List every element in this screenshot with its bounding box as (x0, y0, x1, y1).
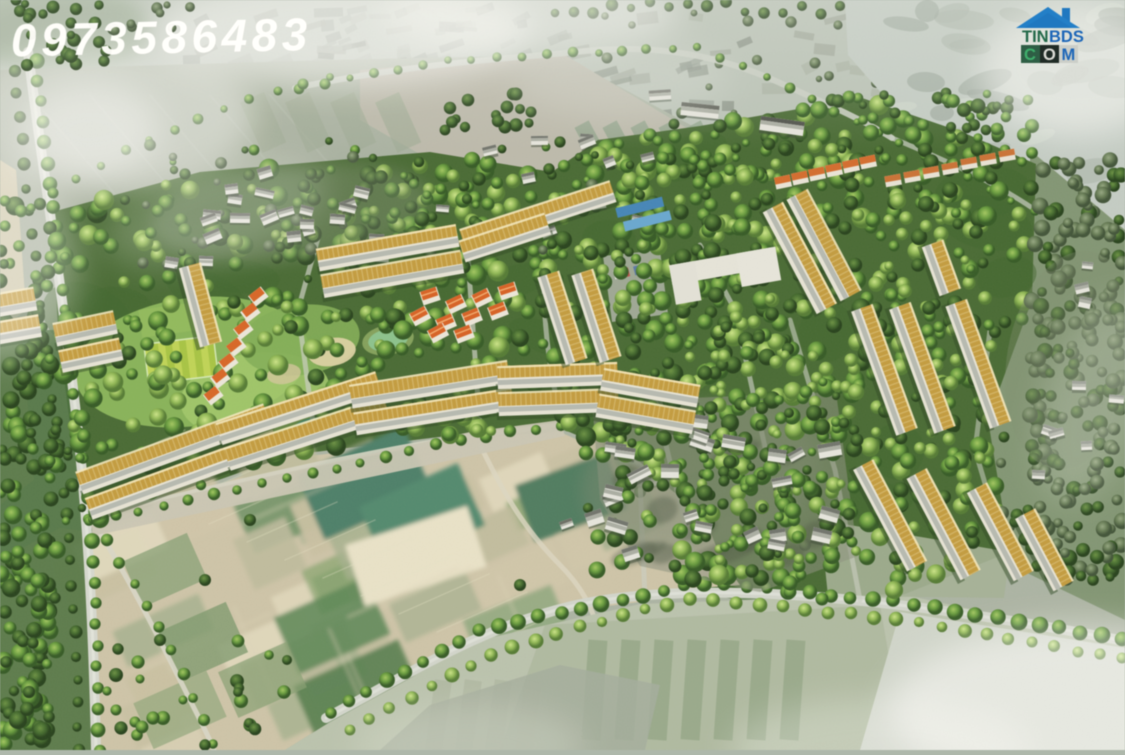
svg-text:0973586483: 0973586483 (10, 8, 312, 66)
svg-text:M: M (1062, 46, 1076, 64)
svg-text:O: O (1043, 46, 1056, 64)
svg-text:TIN: TIN (1022, 28, 1049, 46)
svg-text:BDS: BDS (1049, 28, 1084, 46)
svg-text:C: C (1024, 46, 1036, 64)
